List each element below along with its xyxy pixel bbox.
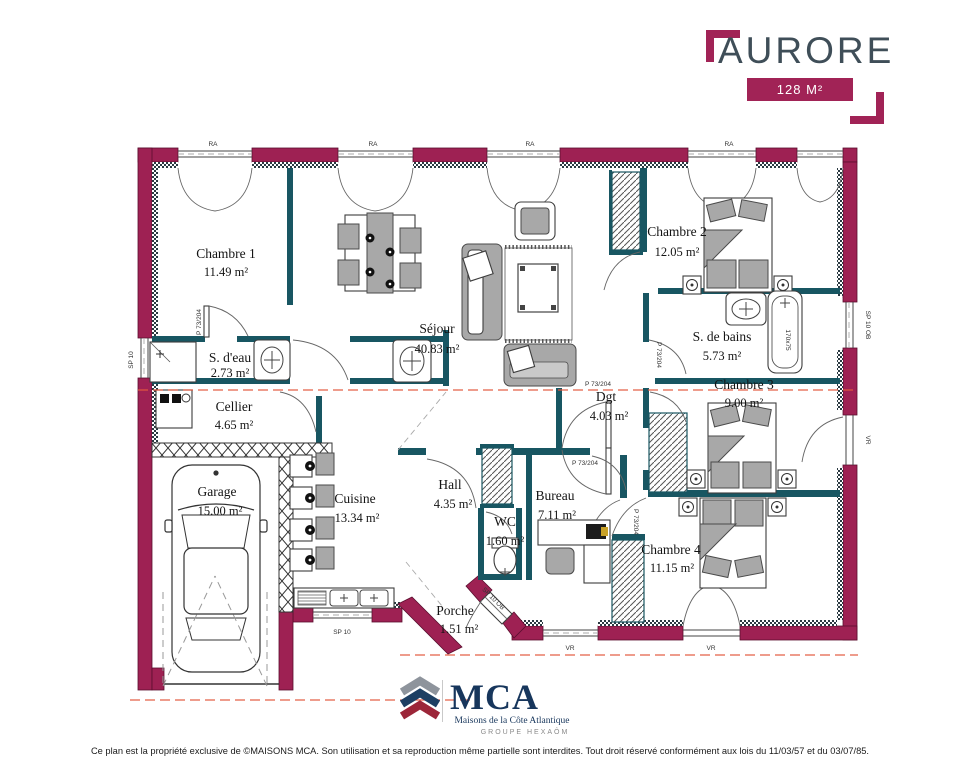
room-label: Chambre 1 bbox=[196, 246, 256, 261]
room-area: 5.73 m² bbox=[703, 349, 742, 363]
room-area: 1.60 m² bbox=[486, 534, 525, 548]
window-code: RA bbox=[525, 141, 535, 148]
bathtub-icon: 170x75 bbox=[768, 291, 802, 373]
window-code: RA bbox=[208, 141, 218, 148]
bar-stools-icon bbox=[290, 453, 334, 571]
nightstand-icon bbox=[778, 470, 796, 488]
window-code: RA bbox=[724, 141, 734, 148]
room-area: 13.34 m² bbox=[335, 511, 380, 525]
door-icon bbox=[293, 340, 348, 380]
floor-plan: 170x75 bbox=[0, 0, 960, 768]
mca-logo: MCA Maisons de la Côte Atlantique GROUPE… bbox=[370, 674, 590, 738]
rug-icon bbox=[505, 247, 572, 341]
window-icon bbox=[338, 151, 413, 211]
door-icon bbox=[280, 392, 316, 432]
wardrobe-icon bbox=[612, 540, 644, 622]
room-label: Porche bbox=[436, 603, 474, 618]
door-icon bbox=[612, 498, 646, 536]
window-code: RA bbox=[368, 141, 378, 148]
logo-text: MCA bbox=[450, 676, 539, 718]
room-area: 12.05 m² bbox=[655, 245, 700, 259]
room-area: 2.73 m² bbox=[211, 366, 250, 380]
window-code: SP 10 bbox=[128, 351, 135, 369]
room-label: Garage bbox=[198, 484, 237, 499]
nightstand-icon bbox=[768, 498, 786, 516]
nightstand-icon bbox=[687, 470, 705, 488]
room-label: Hall bbox=[438, 477, 461, 492]
armchair-icon bbox=[515, 202, 555, 240]
room-label: Chambre 4 bbox=[641, 542, 701, 557]
room-label: Cellier bbox=[216, 399, 253, 414]
shutter-code: VR bbox=[706, 645, 715, 652]
window-icon bbox=[797, 151, 843, 202]
window-icon bbox=[313, 612, 372, 618]
sofa-icon bbox=[462, 244, 502, 340]
mca-cube-icon bbox=[370, 674, 440, 734]
window-code: SP 10 bbox=[333, 629, 351, 636]
window-code: SP 10 OB bbox=[864, 311, 871, 340]
room-area: 9.00 m² bbox=[725, 396, 764, 410]
door-icon bbox=[204, 306, 248, 337]
room-label: Dgt bbox=[596, 389, 616, 404]
bed-icon bbox=[687, 403, 796, 493]
window-icon bbox=[683, 585, 740, 636]
shutter-code: VR bbox=[565, 645, 574, 652]
washer-icon bbox=[156, 390, 192, 428]
room-area: 11.15 m² bbox=[650, 561, 695, 575]
shower-icon bbox=[150, 342, 196, 382]
washbasin-icon bbox=[726, 293, 766, 325]
window-icon bbox=[846, 302, 853, 348]
room-label: Cuisine bbox=[334, 491, 375, 506]
room-area: 15.00 m² bbox=[198, 504, 243, 518]
closet-icon bbox=[612, 172, 640, 250]
room-area: 4.35 m² bbox=[434, 497, 473, 511]
nightstand-icon bbox=[679, 498, 697, 516]
door-icon bbox=[649, 340, 686, 374]
room-area: 4.03 m² bbox=[590, 409, 629, 423]
door-code: P 73/204 bbox=[655, 342, 662, 368]
room-area: 40.83 m² bbox=[415, 342, 460, 356]
bathtub-size-label: 170x75 bbox=[784, 329, 791, 351]
shutter-code: VR bbox=[864, 435, 871, 444]
room-area: 7.11 m² bbox=[538, 508, 576, 522]
door-code: P 73/204 bbox=[572, 460, 598, 467]
room-area: 11.49 m² bbox=[204, 265, 249, 279]
logo-subtitle: Maisons de la Côte Atlantique bbox=[432, 716, 592, 726]
window-icon bbox=[178, 151, 252, 211]
window-icon bbox=[141, 338, 148, 378]
logo-group: GROUPE HEXAÔM bbox=[465, 729, 585, 736]
dining-table-icon bbox=[338, 213, 421, 293]
room-label: WC bbox=[494, 514, 516, 529]
door-icon bbox=[604, 252, 640, 290]
room-label: Chambre 2 bbox=[647, 224, 707, 239]
floor-plan-sheet: AURORE 128 M² bbox=[0, 0, 960, 768]
room-area: 1.51 m² bbox=[440, 622, 479, 636]
room-area: 4.65 m² bbox=[215, 418, 254, 432]
room-label: S. de bains bbox=[693, 329, 752, 344]
washbasin-icon bbox=[254, 340, 290, 380]
copyright-line: Ce plan est la propriété exclusive de ©M… bbox=[0, 746, 960, 756]
window-icon bbox=[543, 630, 598, 636]
wardrobe-icon bbox=[649, 413, 687, 492]
room-label: Séjour bbox=[419, 321, 455, 336]
room-label: S. d'eau bbox=[209, 350, 251, 365]
door-code: P 73/204 bbox=[632, 509, 639, 535]
desk-icon bbox=[538, 520, 610, 583]
hall-closet-icon bbox=[482, 448, 512, 504]
sofa-icon bbox=[504, 344, 576, 386]
room-label: Bureau bbox=[536, 488, 575, 503]
nightstand-icon bbox=[683, 276, 701, 294]
window-icon bbox=[802, 415, 853, 465]
door-code: P 73/204 bbox=[196, 309, 203, 335]
kitchen-sink-icon bbox=[294, 588, 394, 608]
door-code: P 73/204 bbox=[585, 381, 611, 388]
room-label: Chambre 3 bbox=[714, 377, 774, 392]
